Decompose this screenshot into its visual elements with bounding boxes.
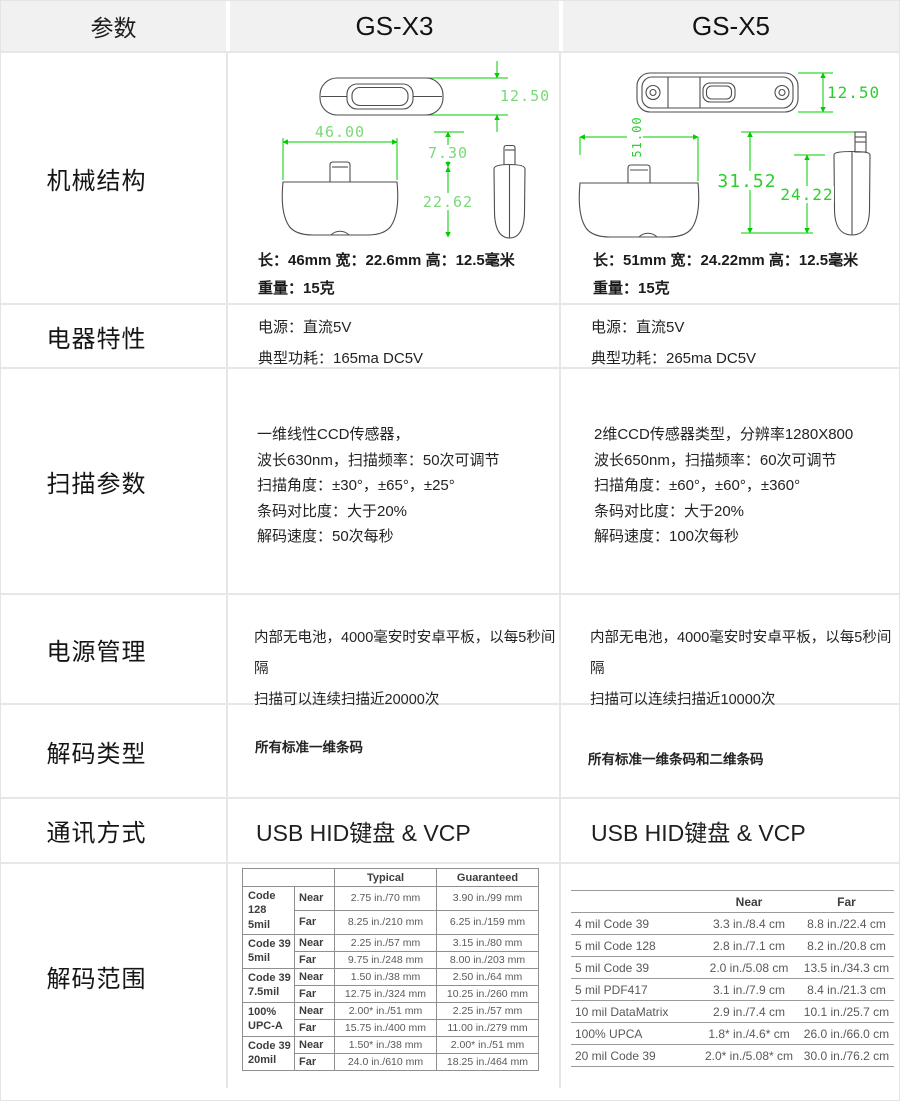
gsx3-scanning-specs: 一维线性CCD传感器，波长630nm，扫描频率：50次可调节扫描角度：±30°，… [228,369,559,550]
table-row: Code 395milNear2.25 in./57 mm3.15 in./80… [243,934,539,951]
range-table-cell: 100%UPC-A [243,1002,295,1036]
range-table-cell: Code 397.5mil [243,968,295,1002]
range-table-cell: Far [295,1019,335,1036]
range-table-cell: 10.25 in./260 mm [437,985,539,1002]
row-label-decode-type: 解码类型 [1,705,228,797]
range-table-cell: 3.3 in./8.4 cm [699,913,799,935]
table-row: 5 mil Code 1282.8 in./7.1 cm8.2 in./20.8… [571,935,894,957]
gsx5-scanning-specs: 2维CCD传感器类型，分辨率1280X800波长650nm，扫描频率：60次可调… [561,369,899,550]
table-row: Code 397.5milNear1.50 in./38 mm2.50 in./… [243,968,539,985]
spec-line: 条码对比度：大于20% [257,499,559,525]
range-table-cell: Far [295,1053,335,1070]
range-table-cell: Typical [335,869,437,887]
range-table-cell: 8.4 in./21.3 cm [799,979,894,1001]
range-table-cell: 10.1 in./25.7 cm [799,1001,894,1023]
row-power: 电源管理 内部无电池，4000毫安时安卓平板，以每5秒间隔扫描可以连续扫描近20… [1,593,899,703]
spec-sheet: 参数 GS-X3 GS-X5 机械结构 [0,0,900,1101]
row-label-decode-range: 解码范围 [1,864,228,1088]
range-table-cell: 5 mil Code 128 [571,935,699,957]
range-table-cell: Guaranteed [437,869,539,887]
row-mechanical: 机械结构 [1,51,899,303]
range-table-cell: 2.00* in./51 mm [437,1036,539,1053]
gsx3-communication: USB HID键盘 & VCP [228,799,559,862]
range-table-cell: Code 395mil [243,934,295,968]
range-table-cell [243,869,335,887]
gsx5-communication: USB HID键盘 & VCP [561,799,899,862]
gsx5-header-label: GS-X5 [563,1,899,51]
spec-line: 波长630nm，扫描频率：50次可调节 [257,448,559,474]
range-table-cell: 2.75 in./70 mm [335,887,437,911]
gsx5-mechanical-cell: 12.50 51.00 31.52 24.22 长：51mm 宽：24.22mm… [561,53,899,303]
gsx3-dimension-drawing: 12.50 46.00 7.30 22.62 [228,53,561,245]
range-table-cell: 18.25 in./464 mm [437,1053,539,1070]
spec-line: 电源：直流5V [258,312,559,343]
range-table-cell: Near [295,887,335,911]
range-table-cell: Code 1285mil [243,887,295,935]
range-table-cell: Near [295,1002,335,1019]
spec-line: 内部无电池，4000毫安时安卓平板，以每5秒间隔 [254,623,559,685]
range-table-cell: Near [295,1036,335,1053]
spec-line: 一维线性CCD传感器， [257,422,559,448]
table-row: 100%UPC-ANear2.00* in./51 mm2.25 in./57 … [243,1002,539,1019]
table-row: 5 mil Code 392.0 in./5.08 cm13.5 in./34.… [571,957,894,979]
header-row: 参数 GS-X3 GS-X5 [1,1,899,51]
range-table-cell: 8.8 in./22.4 cm [799,913,894,935]
row-label-communication: 通讯方式 [1,799,228,862]
range-table-cell: 4 mil Code 39 [571,913,699,935]
range-table-cell: 2.8 in./7.1 cm [699,935,799,957]
range-table-cell: 30.0 in./76.2 cm [799,1045,894,1067]
table-row: 5 mil PDF4173.1 in./7.9 cm8.4 in./21.3 c… [571,979,894,1001]
gsx3-dim-body-label: 22.62 [423,193,473,211]
spec-line: 解码速度：50次每秒 [257,524,559,550]
range-table-cell: Near [295,968,335,985]
gsx5-range-table: NearFar4 mil Code 393.3 in./8.4 cm8.8 in… [571,890,894,1067]
gsx5-dim-total-label: 31.52 [717,171,776,192]
gsx5-dim-body-label: 24.22 [780,185,833,204]
row-decode-type: 解码类型 所有标准一维条码 所有标准一维条码和二维条码 [1,703,899,797]
range-table-cell: Far [295,910,335,934]
range-table-cell: 8.00 in./203 mm [437,951,539,968]
gsx5-size-text: 长：51mm 宽：24.22mm 高：12.5毫米 [593,249,858,270]
range-table-cell: 8.2 in./20.8 cm [799,935,894,957]
gsx5-dim-height-label: 12.50 [827,83,880,102]
range-table-cell: 3.1 in./7.9 cm [699,979,799,1001]
gsx5-decode-type: 所有标准一维条码和二维条码 [561,705,899,768]
param-header-label: 参数 [1,1,226,51]
range-table-cell: 3.15 in./80 mm [437,934,539,951]
gsx3-power-specs: 内部无电池，4000毫安时安卓平板，以每5秒间隔扫描可以连续扫描近20000次 [228,595,559,716]
range-table-cell: 6.25 in./159 mm [437,910,539,934]
gsx5-weight-text: 重量：15克 [593,277,670,298]
spec-line: 条码对比度：大于20% [594,499,899,525]
table-row: 20 mil Code 392.0* in./5.08* cm30.0 in./… [571,1045,894,1067]
range-table-cell: 2.25 in./57 mm [437,1002,539,1019]
row-decode-range: 解码范围 TypicalGuaranteedCode 1285milNear2.… [1,862,899,1088]
range-table-cell: Code 3920mil [243,1036,295,1070]
range-table-cell: 1.50* in./38 mm [335,1036,437,1053]
row-label-scanning: 扫描参数 [1,369,228,593]
gsx3-size-text: 长：46mm 宽：22.6mm 高：12.5毫米 [258,249,515,270]
row-label-mechanical: 机械结构 [1,53,228,303]
gsx3-dim-plug-label: 7.30 [428,144,468,162]
gsx3-dim-height-label: 12.50 [500,87,550,105]
range-table-cell: 3.90 in./99 mm [437,887,539,911]
range-table-cell: 11.00 in./279 mm [437,1019,539,1036]
table-row: 10 mil DataMatrix2.9 in./7.4 cm10.1 in./… [571,1001,894,1023]
gsx3-weight-text: 重量：15克 [258,277,335,298]
table-row: Code 1285milNear2.75 in./70 mm3.90 in./9… [243,887,539,911]
table-row: Code 3920milNear1.50* in./38 mm2.00* in.… [243,1036,539,1053]
spec-line: 2维CCD传感器类型，分辨率1280X800 [594,422,899,448]
spec-line: 波长650nm，扫描频率：60次可调节 [594,448,899,474]
range-table-cell: 2.0* in./5.08* cm [699,1045,799,1067]
spec-line: 解码速度：100次每秒 [594,524,899,550]
gsx3-header-label: GS-X3 [230,1,559,51]
row-scanning: 扫描参数 一维线性CCD传感器，波长630nm，扫描频率：50次可调节扫描角度：… [1,367,899,593]
gsx5-dimension-drawing: 12.50 51.00 31.52 24.22 [561,53,899,245]
gsx3-mechanical-cell: 12.50 46.00 7.30 22.62 长：46mm 宽：22.6mm 高… [228,53,561,303]
range-table-cell: 13.5 in./34.3 cm [799,957,894,979]
range-table-cell: 24.0 in./610 mm [335,1053,437,1070]
gsx3-dim-length-label: 46.00 [315,123,365,141]
row-label-power: 电源管理 [1,595,228,703]
range-table-cell [571,891,699,913]
spec-line: 内部无电池，4000毫安时安卓平板，以每5秒间隔 [590,623,899,685]
range-table-cell: Near [699,891,799,913]
range-table-cell: 100% UPCA [571,1023,699,1045]
range-table-cell: 2.00* in./51 mm [335,1002,437,1019]
row-communication: 通讯方式 USB HID键盘 & VCP USB HID键盘 & VCP [1,797,899,862]
range-table-cell: Far [295,951,335,968]
table-row: 4 mil Code 393.3 in./8.4 cm8.8 in./22.4 … [571,913,894,935]
table-row: TypicalGuaranteed [243,869,539,887]
header-col-gsx3: GS-X3 [228,1,561,51]
range-table-cell: Far [799,891,894,913]
spec-line: 扫描角度：±60°，±60°，±360° [594,473,899,499]
row-label-electrical: 电器特性 [1,305,228,367]
range-table-cell: 8.25 in./210 mm [335,910,437,934]
gsx3-decode-type: 所有标准一维条码 [228,705,559,756]
range-table-cell: 2.25 in./57 mm [335,934,437,951]
spec-line: 电源：直流5V [591,312,899,343]
gsx5-electrical-specs: 电源：直流5V典型功耗：265ma DC5V [561,305,899,374]
range-table-cell: 1.50 in./38 mm [335,968,437,985]
header-col-gsx5: GS-X5 [561,1,899,51]
range-table-cell: 20 mil Code 39 [571,1045,699,1067]
header-col-param: 参数 [1,1,228,51]
range-table-cell: 1.8* in./4.6* cm [699,1023,799,1045]
range-table-cell: 2.9 in./7.4 cm [699,1001,799,1023]
range-table-cell: 5 mil PDF417 [571,979,699,1001]
range-table-cell: 10 mil DataMatrix [571,1001,699,1023]
gsx3-electrical-specs: 电源：直流5V典型功耗：165ma DC5V [228,305,559,374]
table-row: NearFar [571,891,894,913]
row-electrical: 电器特性 电源：直流5V典型功耗：165ma DC5V 电源：直流5V典型功耗：… [1,303,899,367]
range-table-cell: 26.0 in./66.0 cm [799,1023,894,1045]
range-table-cell: 12.75 in./324 mm [335,985,437,1002]
range-table-cell: 9.75 in./248 mm [335,951,437,968]
table-row: 100% UPCA1.8* in./4.6* cm26.0 in./66.0 c… [571,1023,894,1045]
spec-line: 扫描角度：±30°，±65°，±25° [257,473,559,499]
range-table-cell: 2.0 in./5.08 cm [699,957,799,979]
range-table-cell: Near [295,934,335,951]
gsx5-power-specs: 内部无电池，4000毫安时安卓平板，以每5秒间隔扫描可以连续扫描近10000次 [561,595,899,716]
range-table-cell: 2.50 in./64 mm [437,968,539,985]
gsx5-dim-length-label: 51.00 [630,116,644,157]
range-table-cell: 15.75 in./400 mm [335,1019,437,1036]
gsx3-range-table: TypicalGuaranteedCode 1285milNear2.75 in… [242,868,539,1071]
range-table-cell: Far [295,985,335,1002]
range-table-cell: 5 mil Code 39 [571,957,699,979]
